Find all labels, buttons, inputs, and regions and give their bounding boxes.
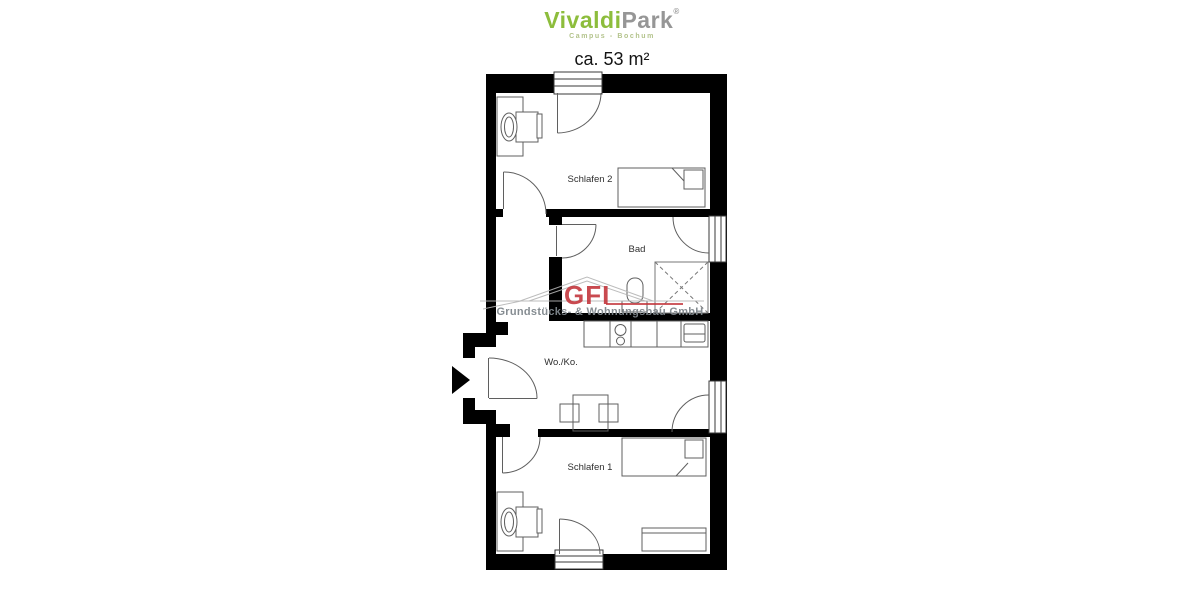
kitchen-counter bbox=[584, 321, 708, 347]
room-label-schlafen1: Schlafen 1 bbox=[555, 462, 625, 473]
wall-bad-pillar bbox=[549, 209, 562, 225]
entrance-arrow-icon bbox=[452, 366, 470, 394]
wall-right bbox=[710, 74, 727, 570]
entrance-niche-block bbox=[463, 398, 475, 410]
pillow bbox=[685, 440, 703, 458]
entrance-niche-block bbox=[487, 424, 510, 437]
wall-bottom bbox=[486, 554, 727, 570]
room-label-woko: Wo./Ko. bbox=[531, 357, 591, 368]
room-label-bad: Bad bbox=[617, 244, 657, 255]
wall-left-upper bbox=[486, 74, 496, 335]
door-bad bbox=[557, 225, 597, 259]
watermark-company: Grundstücks- & Wohnungsbau GmbH bbox=[480, 306, 720, 318]
dining-table bbox=[560, 395, 618, 431]
door-schlafen1 bbox=[503, 437, 541, 473]
stove-burner-icon bbox=[617, 337, 625, 345]
door-terrace-schlafen1 bbox=[560, 519, 601, 554]
wall-top bbox=[486, 74, 727, 93]
wall-s1-right bbox=[538, 429, 710, 437]
pillow bbox=[684, 170, 703, 189]
window-schlafen2-top bbox=[554, 72, 602, 94]
desk-schlafen1 bbox=[497, 492, 542, 551]
entrance-niche-block bbox=[463, 333, 496, 347]
wall-s2-left-stub bbox=[486, 209, 503, 217]
door-schlafen2 bbox=[504, 172, 547, 214]
sink-icon bbox=[684, 324, 705, 342]
door-entrance bbox=[489, 358, 538, 399]
chair bbox=[560, 404, 579, 422]
window-swing-bad bbox=[673, 217, 709, 253]
entrance-niche-block bbox=[463, 410, 496, 424]
door-balcony-schlafen2 bbox=[558, 93, 602, 133]
window-bad-right bbox=[709, 216, 726, 262]
furniture bbox=[497, 97, 708, 551]
floorplan-page: VivaldiPark® Campus - Bochum ca. 53 m² bbox=[0, 0, 1200, 600]
room-label-schlafen2: Schlafen 2 bbox=[555, 174, 625, 185]
bed-schlafen1 bbox=[622, 438, 706, 476]
monitor-icon bbox=[537, 509, 542, 533]
watermark-logo: GFI bbox=[564, 282, 610, 308]
desk-schlafen2 bbox=[497, 97, 542, 156]
stove-burner-icon bbox=[615, 325, 626, 336]
entrance-niche-block bbox=[463, 347, 475, 358]
wall-s2-right bbox=[546, 209, 710, 217]
watermark-underline bbox=[606, 303, 683, 305]
sideboard bbox=[642, 528, 706, 551]
wall-left-lower bbox=[486, 423, 496, 570]
bed-schlafen2 bbox=[618, 168, 705, 207]
window-woko-right bbox=[709, 381, 726, 433]
monitor-icon bbox=[537, 114, 542, 138]
window-swing-woko bbox=[672, 395, 709, 432]
window-schlafen1-bottom bbox=[555, 550, 603, 569]
